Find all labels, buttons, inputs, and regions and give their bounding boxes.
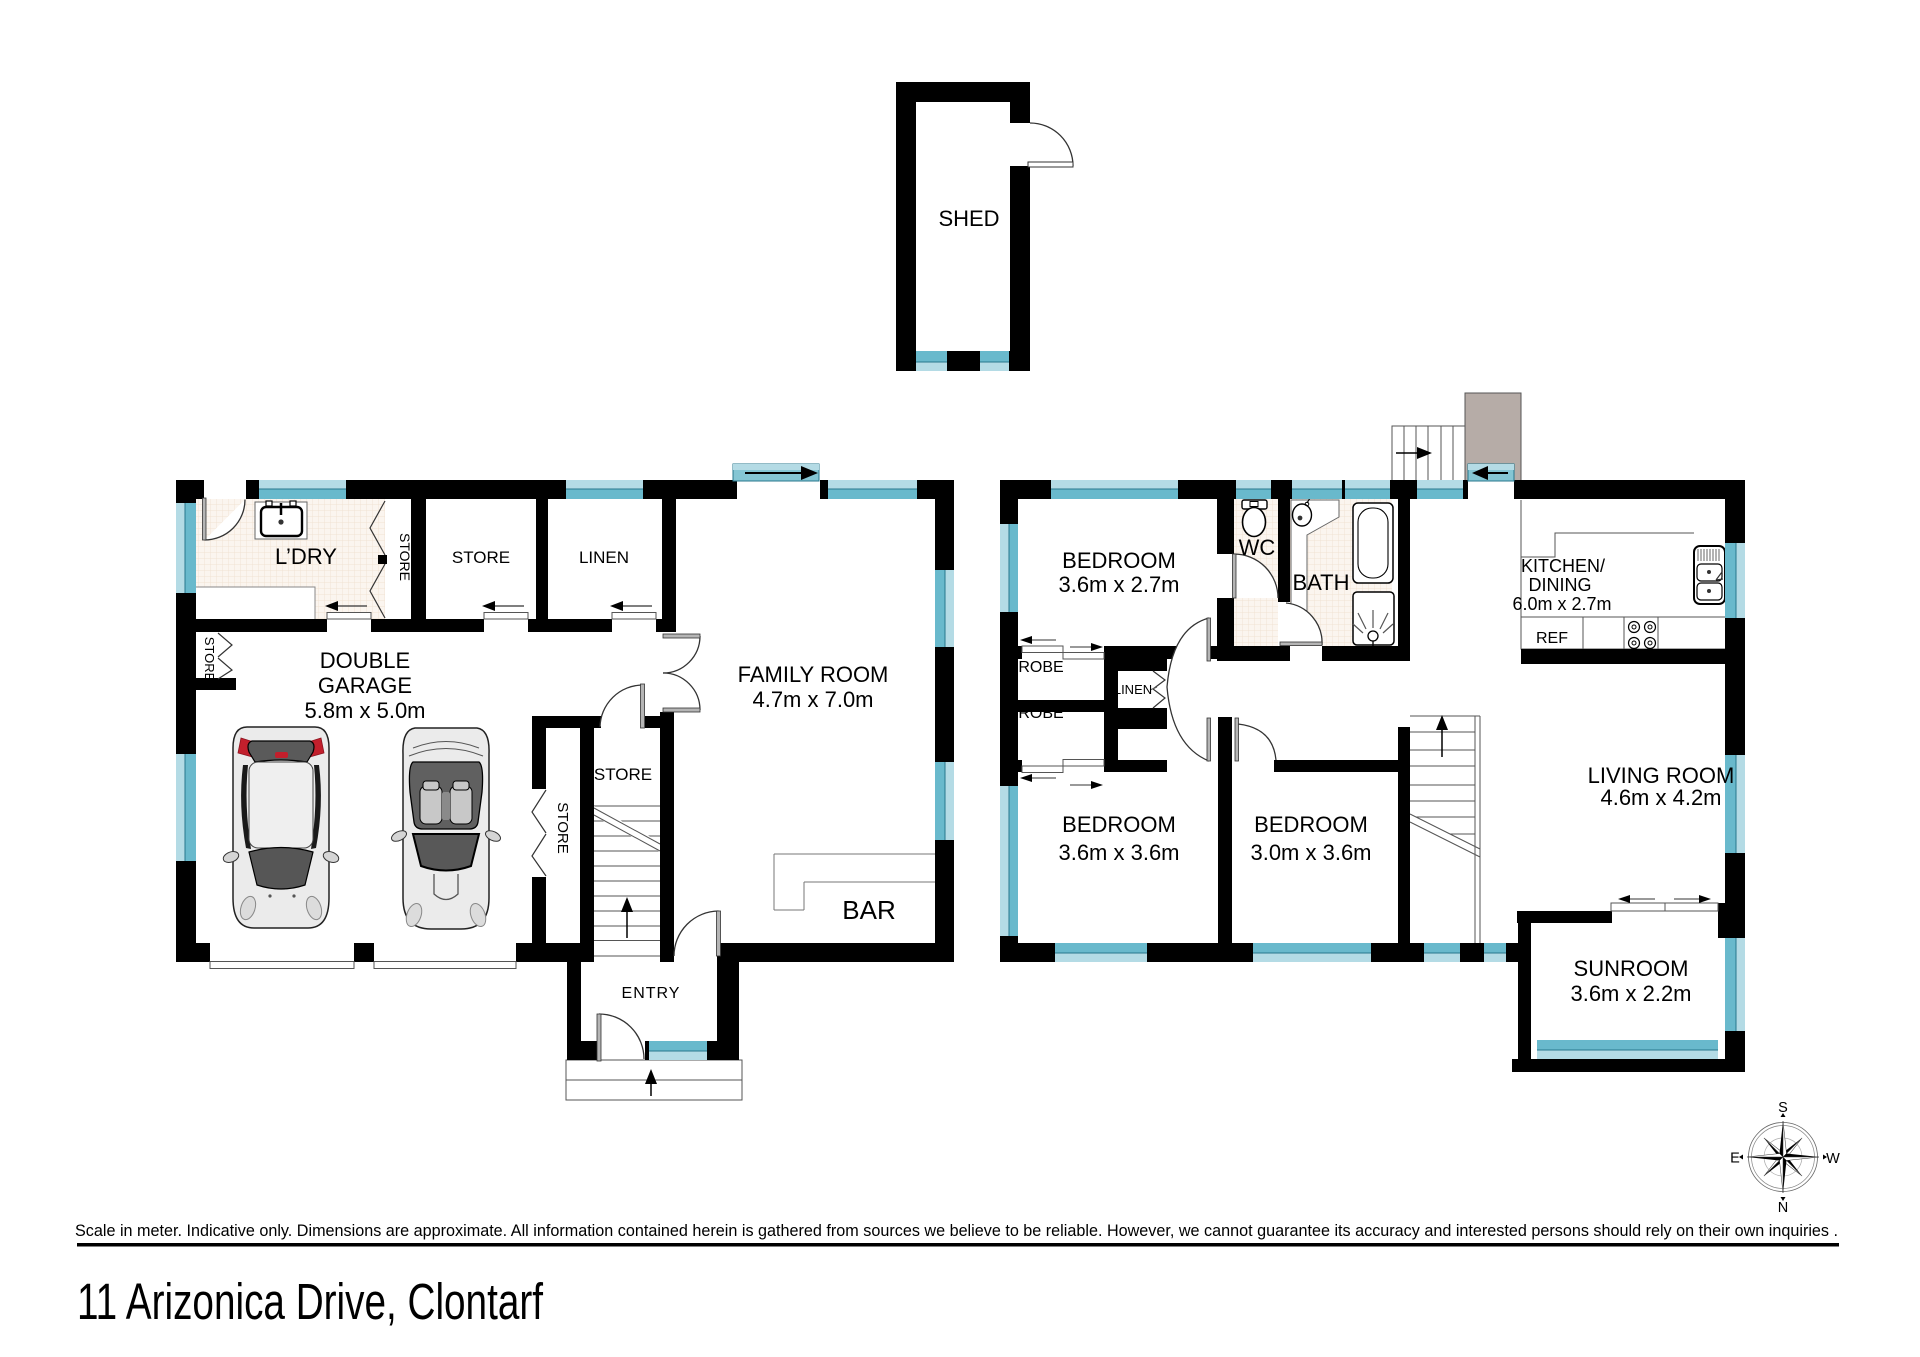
svg-text:SHED: SHED <box>938 206 999 231</box>
svg-text:BEDROOM: BEDROOM <box>1254 812 1368 837</box>
svg-text:DOUBLE: DOUBLE <box>320 648 410 673</box>
svg-text:3.0m x 3.6m: 3.0m x 3.6m <box>1250 840 1371 865</box>
svg-text:STORE: STORE <box>202 637 217 682</box>
svg-text:STORE: STORE <box>452 548 510 567</box>
svg-text:L’DRY: L’DRY <box>275 544 337 569</box>
svg-text:ENTRY: ENTRY <box>622 985 681 1002</box>
svg-text:BEDROOM: BEDROOM <box>1062 812 1176 837</box>
svg-text:Scale in meter. Indicative onl: Scale in meter. Indicative only. Dimensi… <box>75 1222 1838 1240</box>
svg-text:4.6m x 4.2m: 4.6m x 4.2m <box>1600 785 1721 810</box>
svg-text:LINEN: LINEN <box>1114 682 1152 697</box>
svg-text:STORE: STORE <box>594 765 652 784</box>
svg-text:S: S <box>1778 1100 1788 1116</box>
svg-text:3.6m x 2.7m: 3.6m x 2.7m <box>1058 572 1179 597</box>
svg-text:WC: WC <box>1239 535 1276 560</box>
svg-text:3.6m x 3.6m: 3.6m x 3.6m <box>1058 840 1179 865</box>
svg-text:ROBE: ROBE <box>1018 705 1063 722</box>
svg-text:E: E <box>1730 1151 1740 1167</box>
svg-text:SUNROOM: SUNROOM <box>1574 956 1689 981</box>
svg-text:GARAGE: GARAGE <box>318 673 412 698</box>
svg-text:FAMILY ROOM: FAMILY ROOM <box>738 662 889 687</box>
svg-text:6.0m x 2.7m: 6.0m x 2.7m <box>1512 594 1611 614</box>
svg-text:11 Arizonica Drive, Clontarf: 11 Arizonica Drive, Clontarf <box>77 1273 544 1330</box>
svg-text:BATH: BATH <box>1292 570 1349 595</box>
svg-text:5.8m x 5.0m: 5.8m x 5.0m <box>304 698 425 723</box>
svg-text:3.6m x 2.2m: 3.6m x 2.2m <box>1570 981 1691 1006</box>
svg-text:STORE: STORE <box>397 533 413 581</box>
svg-text:ROBE: ROBE <box>1018 659 1063 676</box>
svg-text:REF: REF <box>1536 630 1568 647</box>
svg-text:BAR: BAR <box>842 895 895 925</box>
svg-text:W: W <box>1826 1151 1840 1167</box>
svg-text:KITCHEN/: KITCHEN/ <box>1521 556 1605 576</box>
svg-text:4.7m x 7.0m: 4.7m x 7.0m <box>752 687 873 712</box>
svg-text:LINEN: LINEN <box>579 548 629 567</box>
svg-text:N: N <box>1778 1200 1788 1216</box>
svg-text:STORE: STORE <box>554 802 571 853</box>
svg-text:DINING: DINING <box>1529 575 1592 595</box>
svg-text:BEDROOM: BEDROOM <box>1062 548 1176 573</box>
